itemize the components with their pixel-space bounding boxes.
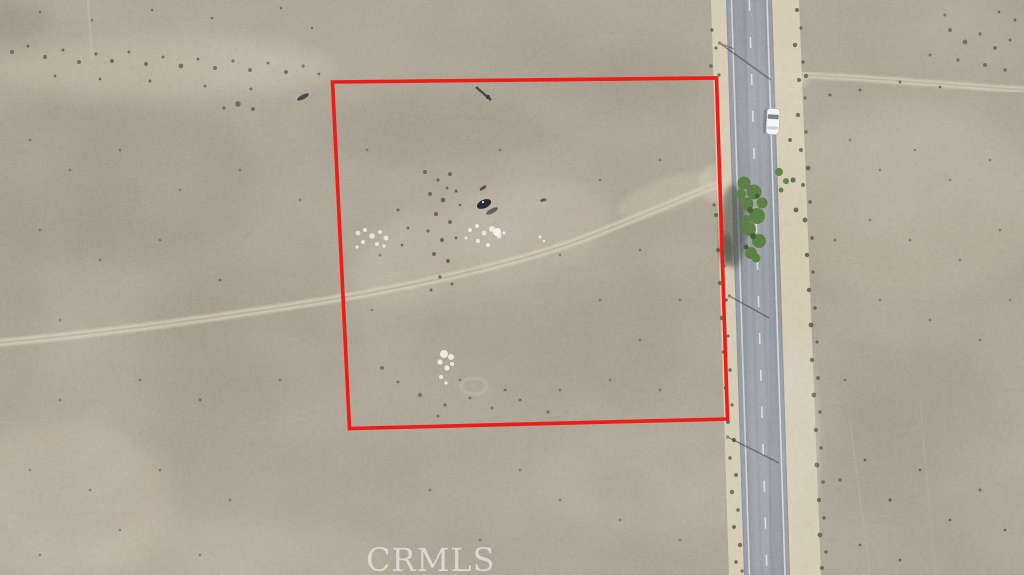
photo-grain-texture-2 xyxy=(0,0,1024,575)
crmls-watermark: CRMLS xyxy=(366,544,496,575)
aerial-photo xyxy=(0,0,1024,575)
aerial-photo-stage: CRMLS xyxy=(0,0,1024,575)
